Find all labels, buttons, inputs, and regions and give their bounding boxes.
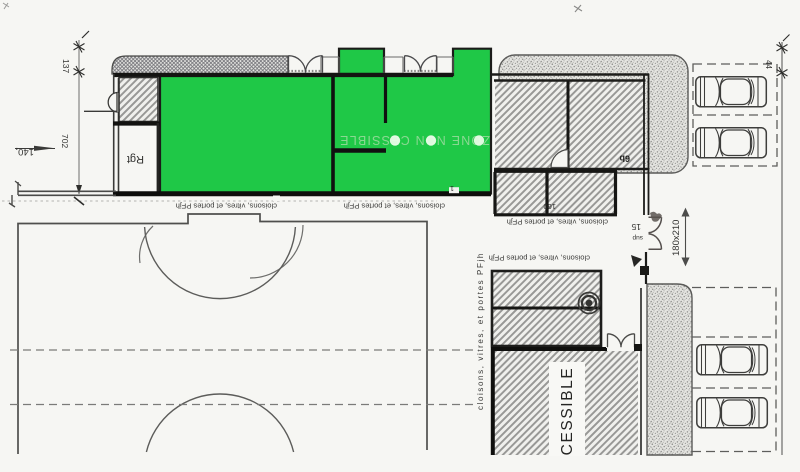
svg-text:44: 44	[764, 60, 773, 69]
svg-text:CESSIBLE: CESSIBLE	[559, 367, 576, 456]
svg-text:cloisons, vitres, et portes PF: cloisons, vitres, et portes PFjh	[344, 202, 445, 211]
svg-text:cloisons, vitres, et portes PF: cloisons, vitres, et portes PFjh	[489, 254, 590, 263]
svg-text:137: 137	[61, 59, 71, 73]
svg-text:180x210: 180x210	[671, 220, 682, 256]
svg-text:702: 702	[60, 134, 70, 148]
svg-text:160: 160	[543, 202, 556, 211]
svg-text:140,: 140,	[16, 146, 35, 157]
svg-text:cloisons, vitres, et portes PF: cloisons, vitres, et portes PFjh	[476, 252, 485, 410]
svg-text:6b: 6b	[619, 154, 630, 164]
svg-text:Rgt: Rgt	[127, 153, 144, 165]
svg-text:cloisons, vitres, et portes PF: cloisons, vitres, et portes PFjh	[176, 202, 277, 211]
svg-text:ZONE NON CESSIBLE: ZONE NON CESSIBLE	[339, 133, 490, 147]
svg-text:sup: sup	[632, 234, 643, 241]
svg-text:15: 15	[631, 222, 641, 232]
svg-text:cloisons, vitres, et portes PF: cloisons, vitres, et portes PFjh	[507, 218, 608, 227]
svg-text:1: 1	[450, 184, 454, 191]
